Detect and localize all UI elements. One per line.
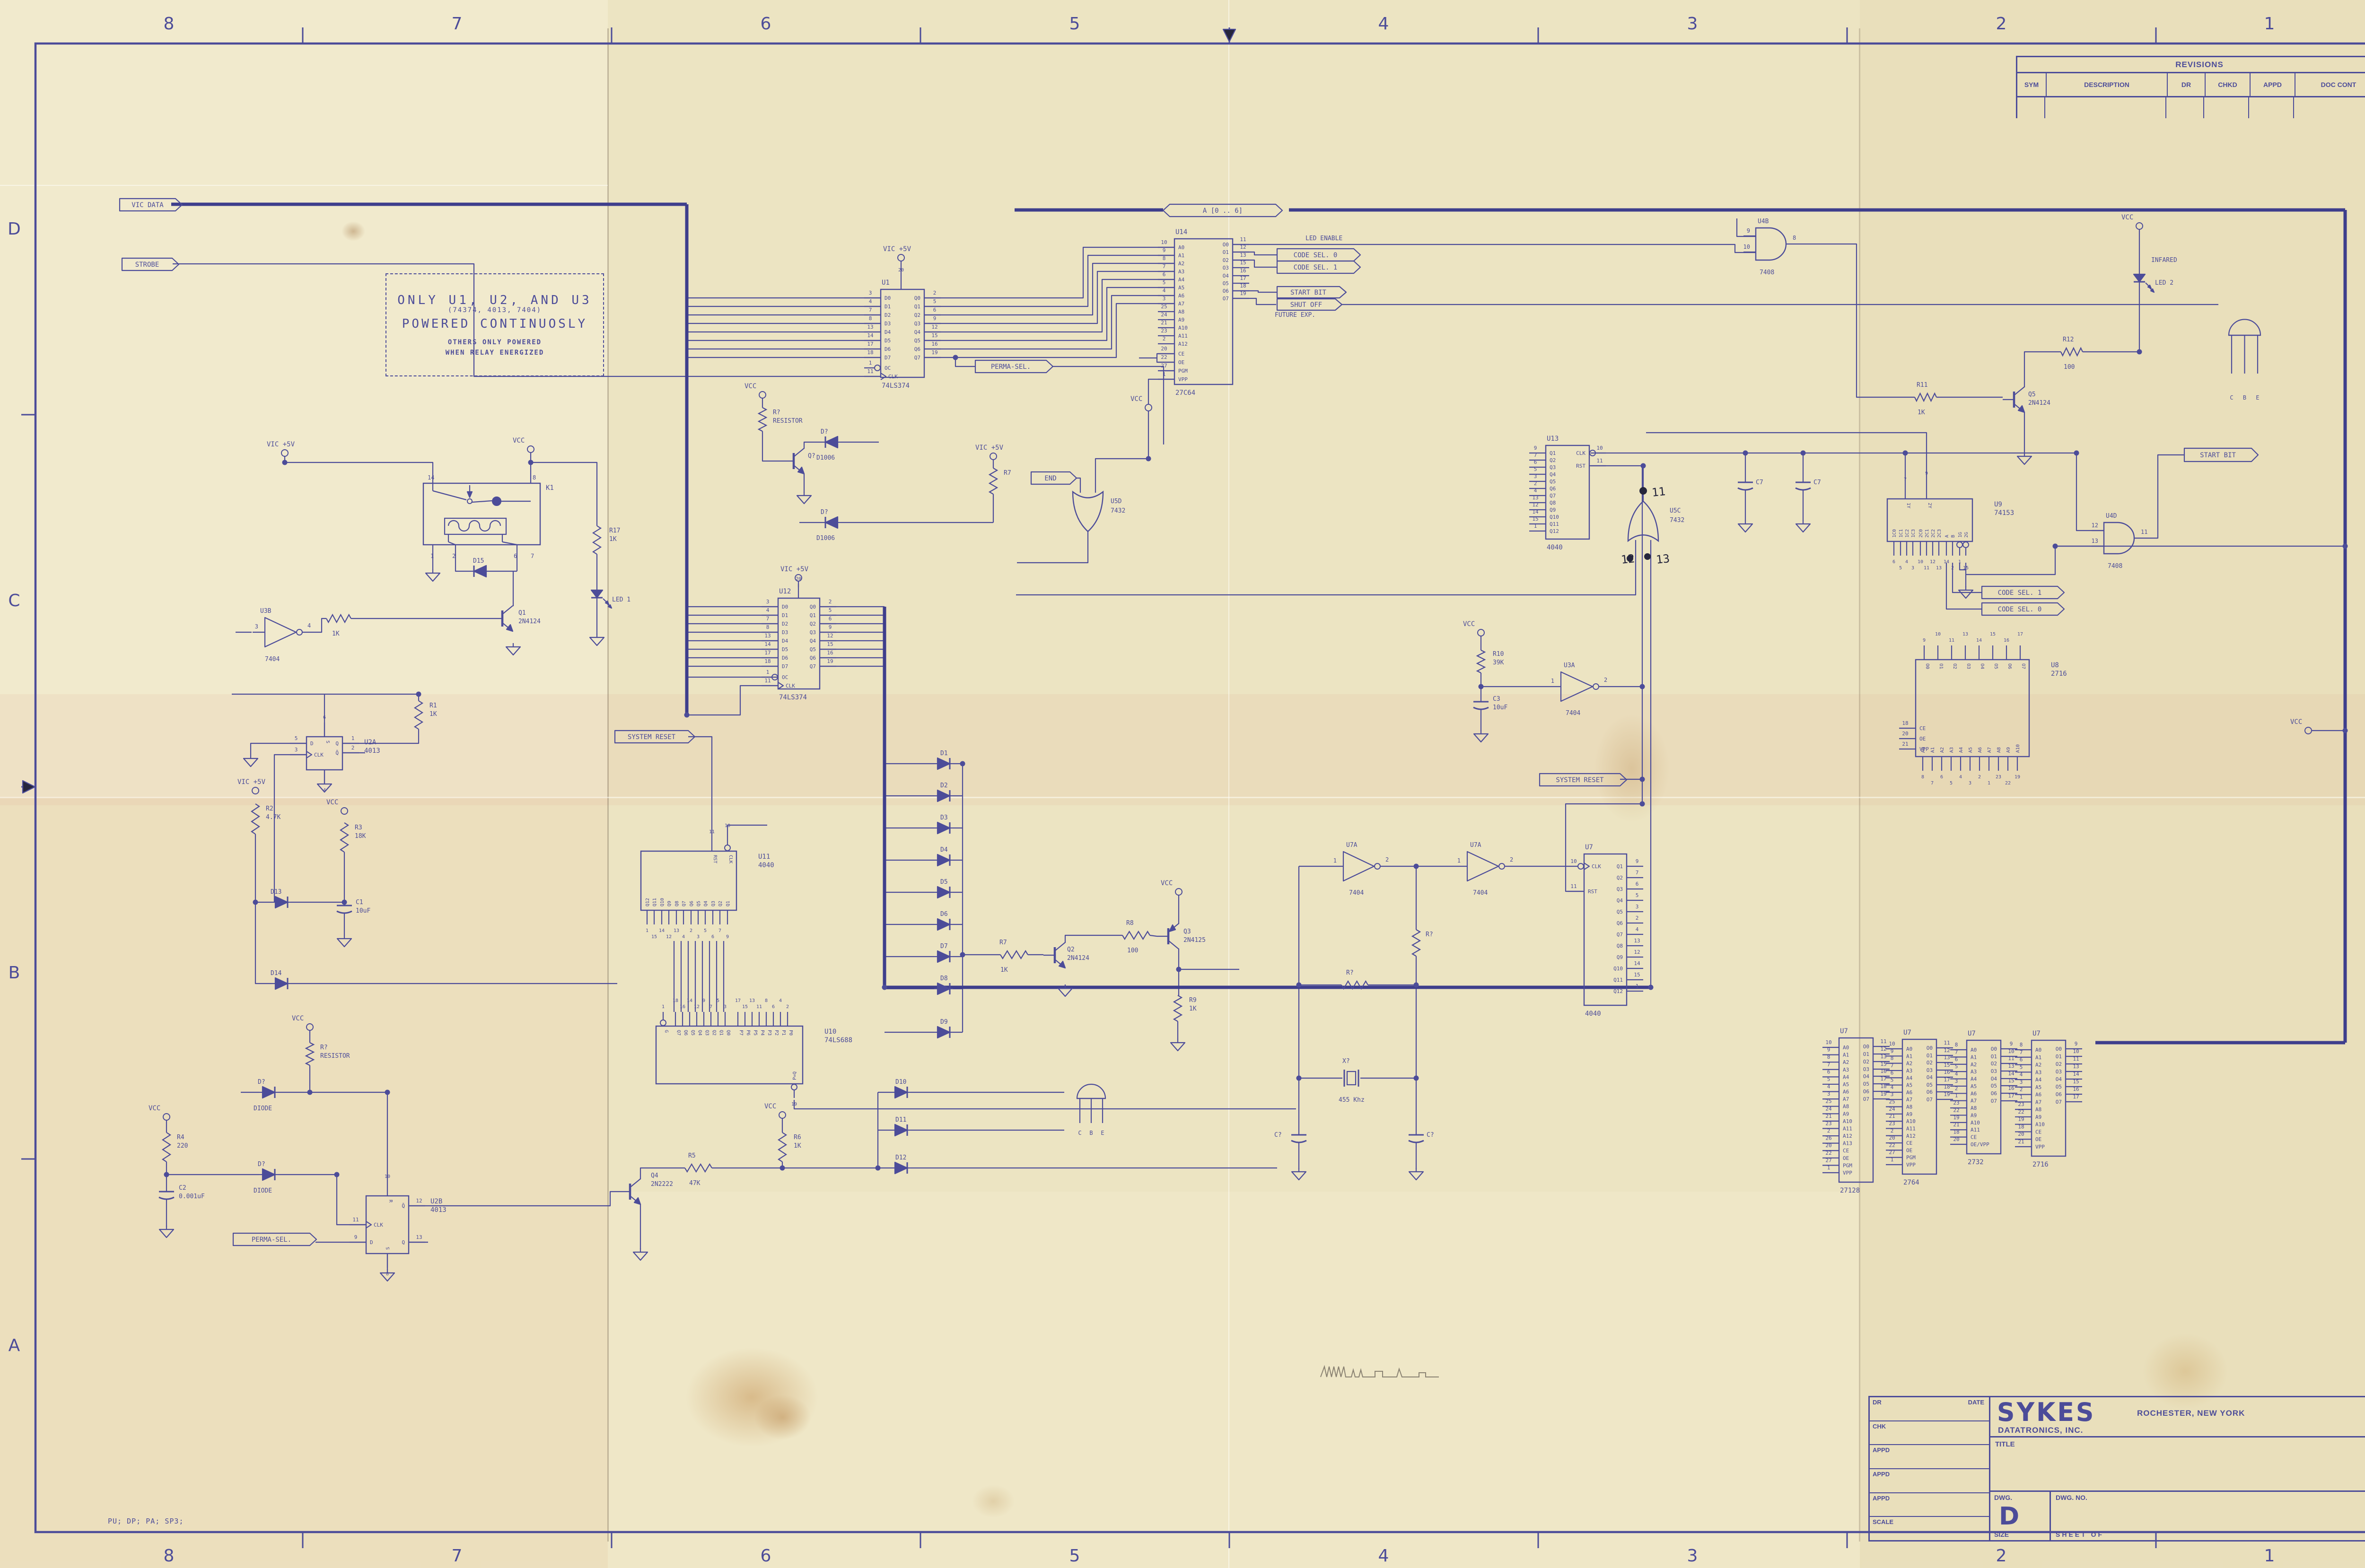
svg-text:E: E: [1101, 1130, 1104, 1136]
svg-text:D6: D6: [940, 911, 948, 918]
svg-text:20: 20: [1161, 346, 1167, 352]
svg-text:18: 18: [1902, 720, 1908, 726]
svg-text:17: 17: [764, 650, 771, 656]
svg-text:U10: U10: [824, 1028, 836, 1036]
svg-text:A10: A10: [2035, 1122, 2045, 1128]
svg-text:7: 7: [1891, 1063, 1894, 1069]
svg-text:CE: CE: [1971, 1134, 1977, 1141]
gate-u3b-7404: 34U3B7404: [253, 608, 315, 663]
svg-text:19: 19: [827, 658, 833, 664]
svg-text:U7: U7: [1968, 1030, 1976, 1037]
svg-text:Q10: Q10: [1550, 514, 1559, 520]
svg-text:5: 5: [1163, 279, 1166, 286]
svg-text:1: 1: [351, 735, 355, 741]
svg-text:6: 6: [1827, 1069, 1831, 1075]
svg-text:1: 1: [662, 1004, 665, 1010]
svg-text:20: 20: [1825, 1142, 1831, 1149]
svg-text:2: 2: [829, 599, 832, 605]
svg-text:O2: O2: [1927, 1060, 1933, 1066]
svg-text:1C3: 1C3: [1911, 529, 1916, 538]
svg-text:15: 15: [1990, 632, 1996, 637]
svg-text:A8: A8: [1843, 1104, 1849, 1110]
svg-text:Q0: Q0: [726, 1030, 731, 1036]
power-note-box: ONLY U1, U2, AND U3 (74374, 4013, 7404) …: [385, 273, 604, 376]
svg-text:1: 1: [1333, 857, 1337, 864]
svg-text:O2: O2: [2056, 1061, 2062, 1067]
svg-text:A10: A10: [1843, 1118, 1852, 1124]
svg-text:4: 4: [307, 622, 311, 629]
svg-text:VIC +5V: VIC +5V: [267, 441, 295, 448]
power-vcc: VCC: [764, 1103, 786, 1118]
junction-dot: [780, 1166, 785, 1171]
svg-text:4: 4: [766, 607, 770, 613]
svg-text:DIODE: DIODE: [254, 1187, 272, 1194]
svg-text:27: 27: [1161, 363, 1167, 369]
svg-text:D0: D0: [885, 295, 891, 301]
capacitor-c2: C20.001uF: [159, 1180, 205, 1210]
svg-text:17: 17: [1240, 275, 1246, 281]
power-vic-5v: VIC +5V: [780, 566, 809, 581]
svg-text:1: 1: [1955, 1093, 1958, 1099]
svg-text:20: 20: [898, 268, 904, 273]
svg-text:8: 8: [1921, 775, 1924, 780]
svg-text:1K: 1K: [1189, 1005, 1197, 1012]
svg-text:Q5: Q5: [1617, 909, 1623, 915]
svg-text:16: 16: [1944, 1069, 1950, 1075]
svg-text:D2: D2: [940, 782, 948, 789]
svg-text:1G: 1G: [1958, 532, 1963, 538]
svg-text:15: 15: [2008, 1078, 2014, 1084]
svg-text:6: 6: [1636, 881, 1639, 887]
title-block-row-scale: SCALE: [1870, 1517, 1989, 1540]
svg-text:C7: C7: [1813, 479, 1821, 486]
ic-u7-2764: U7276410A09A18A27A36A45A54A63A725A824A92…: [1886, 1029, 1953, 1186]
svg-text:11: 11: [2073, 1056, 2079, 1062]
svg-text:A5: A5: [2035, 1084, 2041, 1090]
svg-text:O5: O5: [1223, 280, 1229, 287]
junction-dot: [1146, 456, 1151, 462]
svg-text:Q2: Q2: [1617, 875, 1623, 881]
svg-text:3: 3: [766, 599, 770, 605]
svg-text:U2A: U2A: [364, 739, 377, 746]
svg-text:U7: U7: [2032, 1030, 2041, 1037]
svg-text:2: 2: [933, 290, 937, 296]
svg-text:6: 6: [1955, 1056, 1958, 1063]
resistor-r10: R1039K: [1477, 650, 1504, 673]
svg-text:23: 23: [1825, 1120, 1831, 1126]
ground-icon: [426, 569, 440, 581]
svg-text:27: 27: [1889, 1150, 1895, 1156]
capacitor-c: C?: [1409, 1124, 1434, 1153]
svg-text:22: 22: [1825, 1150, 1831, 1156]
ground-icon: [1171, 1039, 1185, 1051]
svg-text:CLK: CLK: [786, 683, 795, 689]
svg-text:O7: O7: [1223, 296, 1229, 302]
svg-text:Q12: Q12: [645, 898, 650, 906]
svg-text:B: B: [1951, 535, 1956, 538]
svg-text:END: END: [1044, 475, 1056, 482]
svg-text:A6: A6: [1843, 1089, 1849, 1095]
svg-text:12: 12: [666, 934, 672, 940]
label-future-exp: FUTURE EXP.: [1275, 312, 1315, 319]
junction-dot: [1640, 684, 1645, 689]
gate-u4d-7408: 121311U4D7408: [2092, 513, 2148, 570]
svg-text:R1: R1: [429, 702, 437, 709]
svg-text:A12: A12: [1906, 1133, 1916, 1139]
svg-text:15: 15: [1532, 516, 1538, 522]
svg-text:1: 1: [766, 669, 770, 675]
svg-text:VIC +5V: VIC +5V: [237, 778, 266, 786]
svg-text:OE: OE: [1919, 736, 1926, 742]
svg-text:A0: A0: [1906, 1046, 1912, 1052]
junction-dot: [1414, 983, 1419, 988]
svg-text:16: 16: [2004, 638, 2009, 643]
ic-u7-27128: U72712810A09A18A27A36A45A54A63A725A824A9…: [1822, 1028, 1890, 1194]
svg-text:A11: A11: [1178, 333, 1188, 339]
svg-text:X?: X?: [1342, 1058, 1350, 1065]
svg-text:10: 10: [1889, 1041, 1895, 1047]
svg-text:2N4124: 2N4124: [1067, 955, 1089, 962]
svg-text:O5: O5: [2056, 1084, 2062, 1090]
svg-text:Q1: Q1: [726, 901, 731, 906]
svg-text:9: 9: [1923, 638, 1926, 643]
svg-text:24: 24: [1889, 1106, 1895, 1112]
svg-text:A1: A1: [2035, 1054, 2041, 1061]
svg-text:5: 5: [933, 298, 937, 305]
svg-text:P6: P6: [745, 1030, 751, 1036]
svg-text:5: 5: [1636, 892, 1639, 898]
svg-text:6: 6: [772, 1004, 775, 1010]
svg-text:O6: O6: [2007, 663, 2012, 669]
svg-text:A3: A3: [1843, 1067, 1849, 1073]
svg-text:A6: A6: [1178, 293, 1184, 299]
svg-text:10: 10: [1935, 632, 1941, 637]
svg-text:S: S: [385, 1247, 391, 1250]
note-line: POWERED CONTINUOSLY: [402, 317, 587, 331]
svg-text:14: 14: [2073, 1071, 2079, 1077]
resistor-r4: R4220: [163, 1132, 188, 1162]
power-vcc: VCC: [2121, 214, 2143, 229]
svg-text:A1: A1: [1178, 253, 1184, 259]
ic-u7-2716: U727168A07A16A25A34A43A52A61A723A822A919…: [2015, 1030, 2082, 1168]
svg-text:OC: OC: [782, 674, 788, 680]
svg-text:9: 9: [354, 1234, 358, 1240]
gate-u7a-7404: 12U7A7404: [1455, 842, 1517, 897]
svg-text:15: 15: [742, 1004, 748, 1010]
svg-text:A8: A8: [1971, 1105, 1977, 1111]
svg-text:VCC: VCC: [2290, 718, 2302, 726]
svg-text:A4: A4: [1178, 277, 1185, 283]
svg-text:STROBE: STROBE: [135, 261, 159, 269]
gate-u5d-7432: U5D7432: [1073, 492, 1125, 531]
svg-text:4013: 4013: [364, 747, 380, 755]
junction-dot: [2074, 451, 2079, 456]
svg-text:4.7K: 4.7K: [266, 814, 280, 821]
svg-text:A1: A1: [1843, 1052, 1849, 1058]
svg-text:U3B: U3B: [260, 608, 272, 615]
svg-text:2: 2: [1534, 480, 1537, 487]
svg-text:16: 16: [1240, 268, 1246, 274]
svg-text:O2: O2: [1991, 1061, 1997, 1067]
ic-u12-74ls374: U1274LS3743D04D17D28D313D414D517D618D71O…: [762, 576, 836, 701]
svg-text:12: 12: [1634, 949, 1640, 955]
svg-text:U2B: U2B: [430, 1198, 442, 1205]
svg-text:2C2: 2C2: [1931, 529, 1936, 538]
svg-text:15: 15: [827, 641, 833, 647]
svg-text:U4D: U4D: [2106, 513, 2117, 520]
zone-label: 5: [1069, 1546, 1080, 1566]
ic-u2a-4013: U2A40135D3CLK1Q2Q̄6S4: [290, 715, 380, 793]
svg-text:D3: D3: [940, 814, 948, 821]
svg-text:22: 22: [2005, 781, 2011, 786]
svg-text:A5: A5: [1906, 1082, 1912, 1089]
svg-text:P5: P5: [753, 1030, 758, 1036]
svg-text:7404: 7404: [1349, 889, 1364, 897]
svg-text:10uF: 10uF: [356, 907, 370, 915]
junction-dot: [164, 1172, 169, 1177]
label-led-1: LED 1: [612, 596, 631, 603]
svg-text:CODE SEL. 1: CODE SEL. 1: [1998, 589, 2042, 597]
svg-text:2: 2: [452, 553, 455, 559]
svg-text:O0: O0: [1925, 663, 1930, 669]
svg-text:18: 18: [764, 658, 771, 664]
svg-text:2: 2: [690, 928, 692, 933]
svg-text:0.001uF: 0.001uF: [179, 1193, 205, 1200]
revisions-table: REVISIONS SYM DESCRIPTION DR CHKD APPD D…: [2016, 56, 2365, 118]
svg-text:1K: 1K: [332, 630, 340, 637]
svg-text:4013: 4013: [430, 1206, 447, 1214]
svg-text:A3: A3: [1178, 269, 1184, 275]
resistor-r11: R111K: [1915, 382, 1936, 416]
zone-label: 2: [1996, 1546, 2007, 1566]
svg-text:R?: R?: [773, 409, 780, 416]
svg-text:C?: C?: [1427, 1132, 1434, 1139]
diode-d: D?DIODE: [254, 1079, 278, 1112]
svg-text:12: 12: [694, 1004, 700, 1010]
svg-text:VPP: VPP: [1178, 376, 1188, 383]
svg-text:2: 2: [1604, 677, 1607, 683]
svg-text:7: 7: [709, 1004, 712, 1010]
svg-text:A7: A7: [1178, 301, 1184, 307]
svg-text:13: 13: [1240, 252, 1246, 258]
svg-text:R17: R17: [609, 527, 620, 534]
svg-text:D12: D12: [895, 1154, 906, 1161]
svg-text:11: 11: [352, 1217, 359, 1223]
transistor-q5: Q52N4124: [2003, 387, 2050, 412]
svg-text:D10: D10: [895, 1079, 906, 1086]
svg-text:CLK: CLK: [374, 1222, 383, 1228]
svg-text:1: 1: [1534, 523, 1537, 529]
svg-text:22: 22: [1161, 354, 1167, 360]
ic-u10-74ls688: U1074LS6881G18Q716Q614Q512Q49Q37Q25Q13Q0…: [656, 998, 852, 1107]
revisions-col-dr: DR: [2168, 73, 2206, 96]
svg-text:START BIT: START BIT: [1290, 289, 1326, 296]
svg-text:R7: R7: [1004, 470, 1011, 477]
svg-text:8: 8: [1827, 1054, 1831, 1060]
svg-text:A13: A13: [1843, 1141, 1852, 1147]
revisions-col-sym: SYM: [2017, 73, 2047, 96]
svg-text:1: 1: [1958, 559, 1961, 565]
svg-text:10uF: 10uF: [1493, 704, 1507, 711]
junction-dot: [2137, 349, 2142, 355]
junction-dot: [2053, 544, 2058, 549]
diode-d1: D1: [934, 750, 953, 769]
svg-text:11: 11: [1944, 1040, 1950, 1046]
svg-text:D6: D6: [885, 346, 891, 352]
svg-text:A9: A9: [1971, 1112, 1977, 1118]
svg-text:23: 23: [2018, 1101, 2024, 1107]
transistor-q4: Q42N2222: [619, 1172, 673, 1204]
svg-text:2: 2: [1163, 336, 1166, 342]
svg-text:A12: A12: [1178, 341, 1188, 347]
junction-dot: [1296, 983, 1302, 988]
svg-text:D4: D4: [940, 846, 948, 854]
svg-text:C7: C7: [1756, 479, 1763, 486]
svg-text:D14: D14: [271, 970, 282, 977]
svg-text:6: 6: [1940, 775, 1943, 780]
svg-text:O1: O1: [1863, 1051, 1869, 1057]
svg-text:U11: U11: [758, 853, 770, 861]
svg-text:Q2: Q2: [711, 1030, 717, 1036]
svg-text:D1: D1: [782, 612, 788, 618]
svg-text:13: 13: [2092, 538, 2098, 544]
svg-text:4040: 4040: [758, 862, 774, 869]
svg-text:10: 10: [1825, 1039, 1831, 1045]
svg-text:14: 14: [1944, 559, 1949, 565]
svg-text:A10: A10: [1906, 1118, 1916, 1124]
svg-text:27: 27: [1825, 1157, 1831, 1163]
svg-text:O7: O7: [2056, 1099, 2062, 1105]
svg-text:VCC: VCC: [764, 1103, 776, 1110]
ground-icon: [1796, 520, 1810, 532]
svg-text:13: 13: [2073, 1063, 2079, 1070]
svg-text:2C0: 2C0: [1918, 529, 1924, 538]
svg-text:A4: A4: [1843, 1074, 1849, 1080]
svg-text:A8: A8: [1997, 747, 2002, 753]
svg-text:2: 2: [1510, 856, 1513, 863]
gate-u3a-7404: 12U3A7404: [1549, 662, 1612, 717]
power-vcc: VCC: [1161, 880, 1182, 895]
svg-text:O3: O3: [1863, 1066, 1869, 1072]
svg-text:19: 19: [1240, 290, 1246, 296]
svg-text:Q7: Q7: [914, 355, 920, 361]
svg-text:23: 23: [1889, 1120, 1895, 1126]
title-block-row-dr: DR DATE: [1870, 1397, 1989, 1421]
svg-text:2: 2: [1636, 915, 1639, 921]
svg-text:VPP: VPP: [2035, 1144, 2045, 1150]
svg-text:14: 14: [1976, 638, 1982, 643]
svg-text:C: C: [2230, 394, 2233, 401]
svg-text:11: 11: [1570, 883, 1577, 889]
ground-icon: [337, 935, 351, 947]
svg-text:27128: 27128: [1840, 1187, 1860, 1194]
svg-text:5: 5: [1950, 781, 1953, 786]
svg-text:6: 6: [933, 307, 937, 313]
svg-text:R3: R3: [355, 824, 362, 831]
power-vcc: VCC: [745, 383, 766, 398]
svg-text:7: 7: [869, 307, 872, 313]
svg-text:D4: D4: [885, 329, 891, 335]
svg-text:O6: O6: [2056, 1091, 2062, 1098]
diode-d: D?D1006: [816, 509, 841, 542]
svg-text:13: 13: [1880, 1054, 1886, 1060]
svg-text:14: 14: [1634, 960, 1640, 967]
svg-text:18: 18: [1880, 1083, 1886, 1089]
svg-text:VIC DATA: VIC DATA: [131, 201, 164, 209]
svg-text:19: 19: [1880, 1091, 1886, 1097]
svg-text:O3: O3: [1927, 1067, 1933, 1073]
ground-icon: [2017, 453, 2032, 464]
svg-text:A9: A9: [2006, 747, 2011, 753]
svg-text:1: 1: [2020, 1094, 2023, 1100]
svg-text:9: 9: [2010, 1041, 2013, 1047]
svg-text:Q10: Q10: [1613, 966, 1623, 972]
svg-text:12: 12: [1944, 1047, 1950, 1054]
svg-text:A4: A4: [2035, 1077, 2042, 1083]
note-line: ONLY U1, U2, AND U3: [397, 293, 592, 307]
svg-text:74LS688: 74LS688: [824, 1037, 852, 1044]
svg-text:6: 6: [1163, 271, 1166, 278]
svg-text:Q9: Q9: [667, 901, 672, 906]
junction-dot: [2343, 544, 2348, 549]
svg-text:B: B: [2243, 394, 2246, 401]
junction-dot: [1801, 451, 1806, 456]
flag-perma-sel: PERMA-SEL.: [975, 360, 1053, 373]
svg-text:PERMA-SEL.: PERMA-SEL.: [252, 1236, 291, 1244]
note-line: OTHERS ONLY POWERED: [448, 339, 542, 346]
svg-text:4: 4: [1534, 488, 1537, 494]
svg-text:A2: A2: [1971, 1062, 1977, 1068]
svg-text:18: 18: [867, 349, 873, 356]
title-block-row-appd: APPD: [1870, 1493, 1989, 1517]
svg-text:VCC: VCC: [326, 799, 338, 806]
ground-icon: [590, 634, 604, 645]
junction-dot: [1903, 451, 1908, 456]
svg-text:Q6: Q6: [1550, 486, 1556, 492]
svg-text:13: 13: [1936, 566, 1942, 571]
svg-text:Q1: Q1: [1617, 863, 1623, 870]
ic-u14-27c64: U1427C6410A09A18A27A36A45A54A63A725A824A…: [1158, 228, 1249, 397]
svg-text:4040: 4040: [1547, 544, 1563, 551]
svg-text:12: 12: [1240, 244, 1246, 250]
svg-text:D11: D11: [895, 1116, 906, 1124]
svg-text:21: 21: [2018, 1139, 2024, 1145]
svg-text:A6: A6: [1971, 1090, 1977, 1097]
svg-text:9: 9: [829, 624, 832, 630]
svg-text:R11: R11: [1917, 382, 1927, 389]
svg-text:6: 6: [323, 715, 326, 720]
svg-text:14: 14: [764, 641, 771, 647]
svg-text:3: 3: [1911, 566, 1914, 571]
ground-icon: [159, 1226, 174, 1237]
svg-text:O5: O5: [1993, 663, 1998, 669]
svg-text:Q5: Q5: [690, 1030, 695, 1036]
svg-text:CLK: CLK: [888, 374, 898, 380]
svg-text:8: 8: [2020, 1042, 2023, 1048]
gate-u5c-7432: U5C7432: [1628, 501, 1684, 541]
svg-text:RESISTOR: RESISTOR: [773, 418, 803, 425]
zone-label: 2: [1996, 14, 2007, 34]
title-block-row-chk: CHK: [1870, 1421, 1989, 1446]
svg-text:18: 18: [1953, 1129, 1959, 1135]
svg-text:SYSTEM RESET: SYSTEM RESET: [628, 733, 676, 741]
svg-text:A4: A4: [1971, 1076, 1977, 1082]
svg-text:22: 22: [1889, 1142, 1895, 1148]
relay-k1: K11481267: [423, 474, 554, 559]
svg-text:Q5: Q5: [810, 646, 816, 653]
svg-text:16: 16: [1880, 1068, 1886, 1074]
svg-text:4040: 4040: [1585, 1010, 1601, 1018]
